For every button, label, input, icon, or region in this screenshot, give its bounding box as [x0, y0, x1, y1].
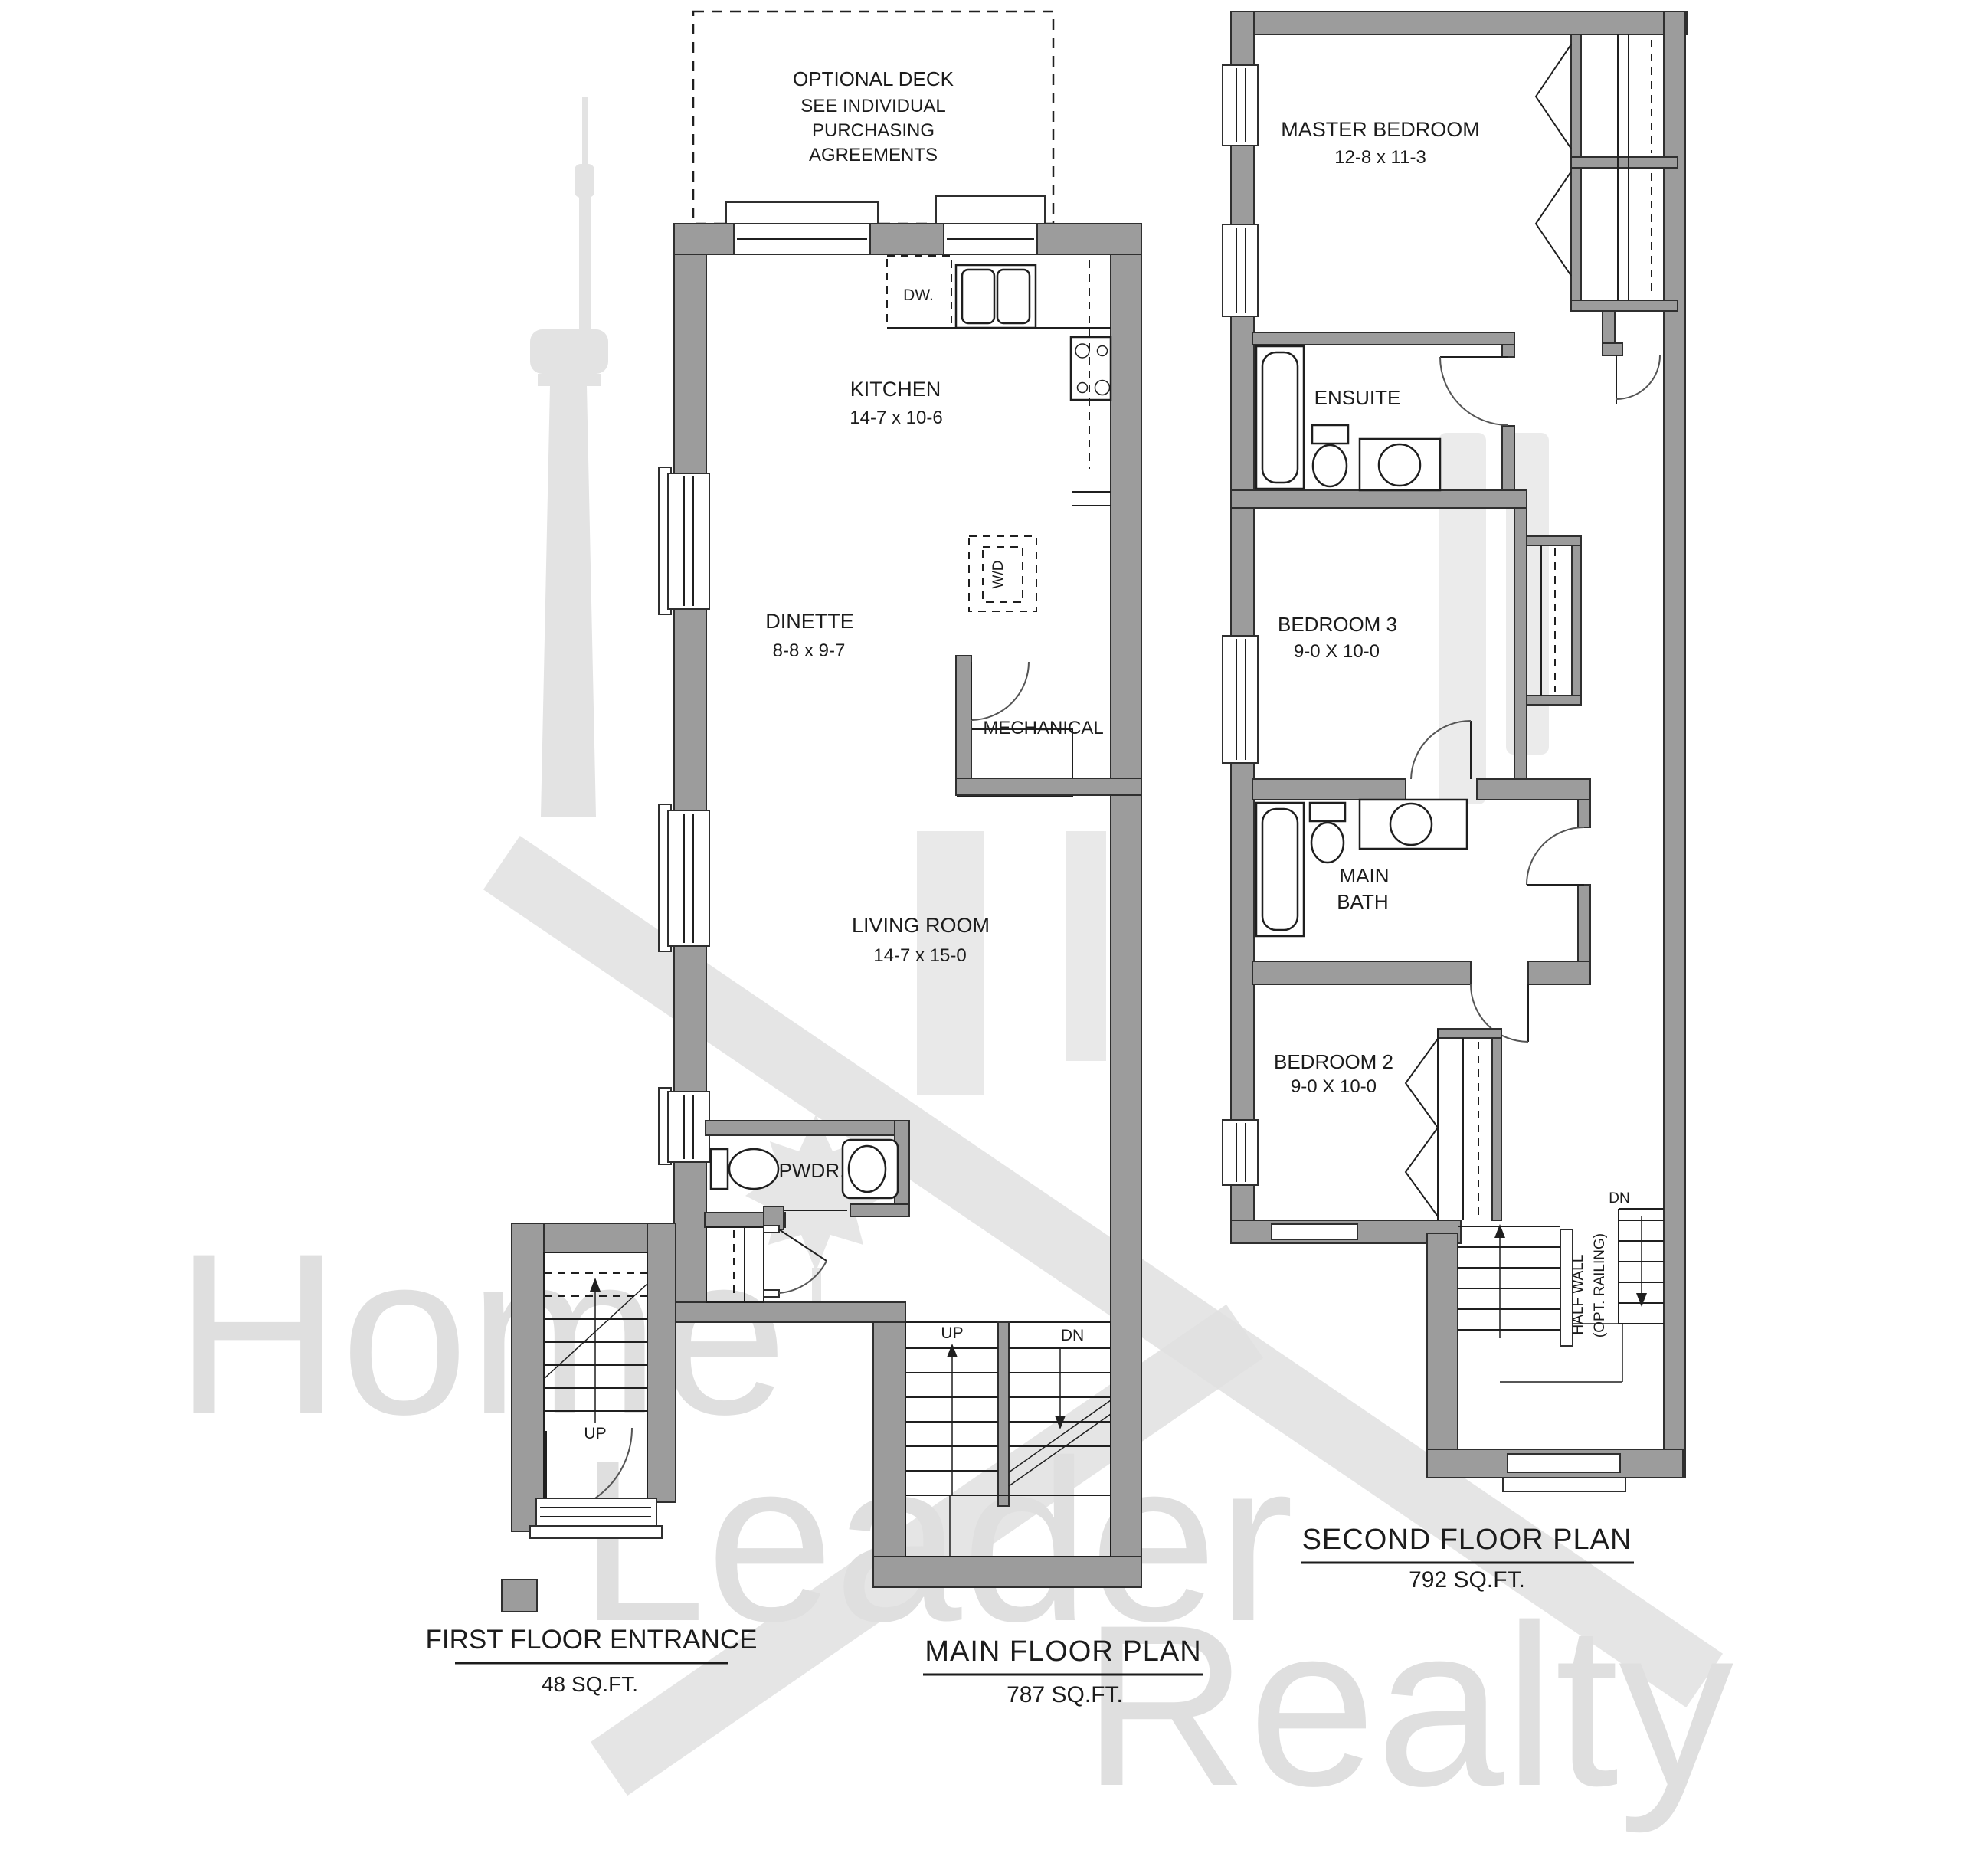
- kitchen-size: 14-7 x 10-6: [850, 408, 942, 428]
- master-bedroom-size: 12-8 x 11-3: [1334, 147, 1426, 168]
- kitchen-name: KITCHEN: [850, 378, 941, 401]
- stair-treads-up: [1458, 1226, 1560, 1330]
- ensuite-toilet: [1312, 425, 1348, 486]
- main-floor-title: MAIN FLOOR PLAN: [925, 1635, 1201, 1668]
- bedroom2-name: BEDROOM 2: [1274, 1050, 1393, 1073]
- bath-sink: [1360, 800, 1467, 849]
- living-room-name: LIVING ROOM: [852, 914, 990, 937]
- bedroom-2: BEDROOM 2 9-0 X 10-0: [1252, 961, 1590, 1220]
- closet-bifold-door: [1536, 172, 1571, 276]
- master-door: [1616, 355, 1660, 404]
- floor-plan-canvas: Home Leader Realty OPTIONAL DECK SEE IND…: [0, 0, 1961, 1876]
- bath-label-2: BATH: [1337, 890, 1388, 913]
- closet-bifold-door: [1536, 44, 1571, 149]
- closet-bifold-door: [1406, 1128, 1438, 1216]
- main-bath: MAIN BATH: [1252, 779, 1590, 961]
- deck-label-4: AGREEMENTS: [809, 145, 938, 165]
- deck-label-2: SEE INDIVIDUAL: [800, 96, 945, 116]
- half-wall-label-2: (OPT. RAILING): [1592, 1233, 1608, 1337]
- powder-sink: [843, 1140, 898, 1198]
- washer-dryer-label: W/D: [990, 561, 1007, 589]
- bedroom3-name: BEDROOM 3: [1278, 613, 1397, 636]
- entrance-title: FIRST FLOOR ENTRANCE: [425, 1625, 757, 1655]
- second-floor-area: 792 SQ.FT.: [1409, 1567, 1525, 1593]
- bath-door: [1527, 827, 1584, 885]
- bedroom2-closet: [1406, 1029, 1501, 1220]
- watermark-word-realty: Realty: [1082, 1576, 1733, 1835]
- dinette-name: DINETTE: [765, 610, 854, 633]
- master-closets: [1536, 34, 1678, 311]
- ensuite-tub: [1256, 346, 1304, 489]
- ensuite-label: ENSUITE: [1314, 386, 1401, 409]
- washer-dryer: W/D: [969, 536, 1036, 611]
- optional-deck: OPTIONAL DECK SEE INDIVIDUAL PURCHASING …: [693, 11, 1053, 224]
- master-bedroom: MASTER BEDROOM 12-8 x 11-3: [1252, 34, 1678, 404]
- bedroom3-size: 9-0 X 10-0: [1294, 641, 1380, 662]
- kitchen-sink: [956, 265, 1036, 328]
- ensuite-sink: [1360, 439, 1440, 490]
- second-floor-plan: MASTER BEDROOM 12-8 x 11-3: [1223, 11, 1687, 1593]
- bath-toilet: [1310, 803, 1345, 863]
- deck-label-3: PURCHASING: [812, 120, 935, 141]
- deck-label-1: OPTIONAL DECK: [793, 67, 954, 90]
- main-floor-area: 787 SQ.FT.: [1007, 1682, 1123, 1707]
- entrance-legend-swatch: [502, 1580, 537, 1612]
- ensuite-door: [1440, 357, 1508, 425]
- powder-label: PWDR.: [779, 1159, 846, 1182]
- entrance-up-label: UP: [584, 1425, 606, 1442]
- cn-tower-watermark: [530, 97, 608, 817]
- bedroom2-size: 9-0 X 10-0: [1291, 1076, 1377, 1097]
- entrance-area: 48 SQ.FT.: [542, 1672, 638, 1696]
- main-stairs-up-label: UP: [941, 1324, 963, 1342]
- bath-tub: [1256, 803, 1304, 936]
- dishwasher-label: DW.: [903, 286, 934, 304]
- bath-label-1: MAIN: [1340, 864, 1390, 887]
- living-room-size: 14-7 x 15-0: [873, 945, 966, 966]
- kitchen: DW. KITCHEN 14-7 x 10-6 W/D: [850, 256, 1111, 797]
- main-stairs-dn-label: DN: [1061, 1327, 1084, 1344]
- closet-bifold-door: [1406, 1039, 1438, 1128]
- toilet: [711, 1149, 778, 1189]
- mechanical-label: MECHANICAL: [983, 718, 1103, 738]
- second-floor-title: SECOND FLOOR PLAN: [1302, 1524, 1632, 1556]
- second-floor-stairs: DN HALF WALL (OPT. RAILING): [1458, 1190, 1664, 1382]
- dinette-size: 8-8 x 9-7: [773, 640, 846, 661]
- second-floor-dn-label: DN: [1609, 1190, 1629, 1206]
- master-bedroom-name: MASTER BEDROOM: [1281, 118, 1480, 141]
- half-wall-label-1: HALF WALL: [1570, 1255, 1586, 1335]
- stove: [1071, 337, 1111, 400]
